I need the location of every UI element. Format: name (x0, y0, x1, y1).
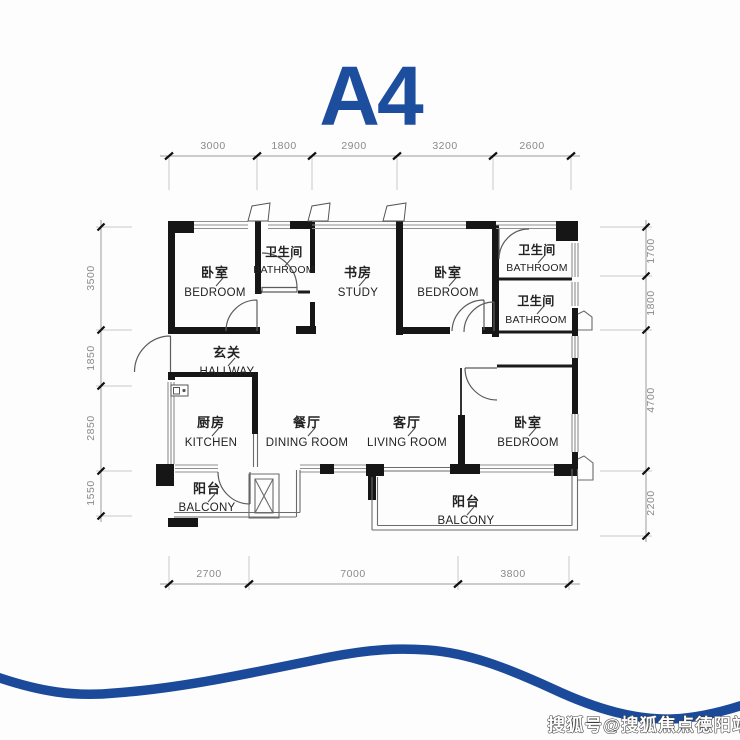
room-label-bedroom-3-en: BEDROOM (497, 437, 559, 449)
room-label-bedroom-2-cn: 卧室 (434, 265, 462, 280)
room-label-balcony-2-cn: 阳台 (452, 494, 480, 509)
room-label-dining-cn: 餐厅 (292, 415, 321, 430)
room-label-bathroom-2-en: BATHROOM (506, 262, 568, 274)
room-label-hallway-en: HALLWAY (200, 366, 255, 378)
room-label-study-cn: 书房 (344, 265, 372, 280)
room-label-balcony-1-en: BALCONY (178, 502, 235, 514)
dim-left-3: 2850 (85, 415, 97, 440)
room-label-bedroom-1-en: BEDROOM (184, 287, 246, 299)
dim-right-4: 2200 (645, 490, 657, 515)
dim-right-3: 4700 (645, 387, 657, 412)
dim-bottom-1: 2700 (196, 568, 221, 580)
dim-left-2: 1850 (85, 345, 97, 370)
room-label-bathroom-1-en: BATHROOM (253, 264, 315, 276)
room-label-living-cn: 客厅 (393, 415, 421, 430)
room-label-kitchen-cn: 厨房 (197, 415, 225, 430)
room-label-bathroom-2-cn: 卫生间 (518, 242, 556, 257)
watermark-text: 搜狐号@搜狐焦点德阳站 (547, 715, 740, 735)
window-niches (248, 203, 406, 221)
room-label-bedroom-2-en: BEDROOM (417, 287, 479, 299)
floor-plan-svg: A4 卧室 BEDROOM 卫生间 BATHROOM 书房 STUDY 卧室 B… (0, 0, 740, 740)
room-label-study-en: STUDY (338, 287, 379, 299)
room-label-hallway-cn: 玄关 (213, 345, 241, 360)
dim-right-2: 1800 (645, 290, 657, 315)
dim-left-4: 1550 (85, 480, 97, 505)
room-label-dining-en: DINING ROOM (266, 437, 349, 449)
dim-top-5: 2600 (519, 140, 544, 152)
stove-burner-dot (182, 389, 185, 392)
room-label-bathroom-1-cn: 卫生间 (265, 244, 303, 259)
room-label-bedroom-3-cn: 卧室 (514, 415, 542, 430)
room-label-balcony-2-en: BALCONY (437, 515, 494, 527)
room-label-bathroom-3-en: BATHROOM (505, 314, 567, 326)
dim-top-4: 3200 (432, 140, 457, 152)
room-label-living-en: LIVING ROOM (367, 437, 447, 449)
doors (135, 229, 530, 504)
dim-left-1: 3500 (85, 265, 97, 290)
dim-top-3: 2900 (341, 140, 366, 152)
dim-right-1: 1700 (645, 238, 657, 263)
dim-bottom-2: 7000 (340, 568, 365, 580)
wave-decoration (0, 649, 740, 719)
room-label-balcony-1-cn: 阳台 (193, 481, 221, 496)
room-label-bedroom-1-cn: 卧室 (201, 265, 229, 280)
dim-top-1: 3000 (200, 140, 225, 152)
room-label-kitchen-en: KITCHEN (185, 437, 238, 449)
page: A4 卧室 BEDROOM 卫生间 BATHROOM 书房 STUDY 卧室 B… (0, 0, 740, 740)
dim-top-2: 1800 (271, 140, 296, 152)
dim-bottom-3: 3800 (500, 568, 525, 580)
page-title: A4 (319, 49, 424, 143)
room-label-bathroom-3-cn: 卫生间 (517, 293, 555, 308)
